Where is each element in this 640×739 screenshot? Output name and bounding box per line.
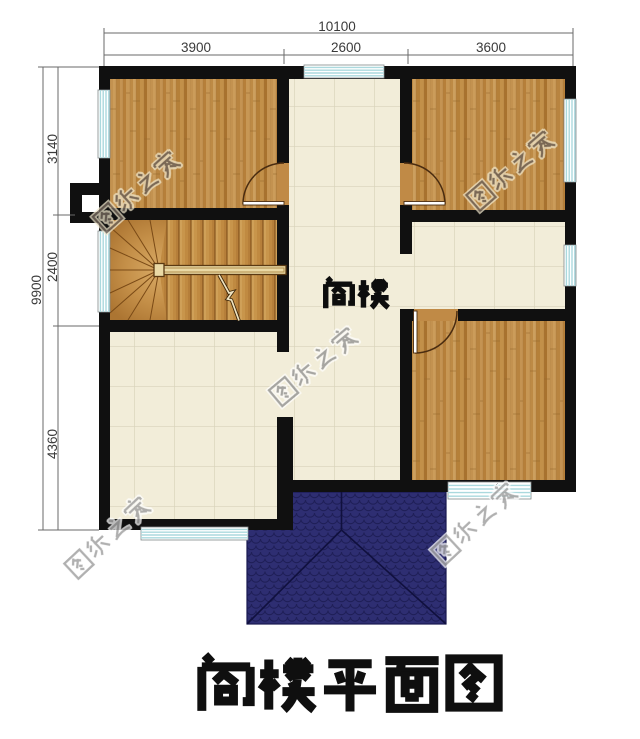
svg-text:2400: 2400 — [45, 252, 60, 282]
svg-text:3900: 3900 — [181, 40, 211, 55]
svg-text:2600: 2600 — [331, 40, 361, 55]
svg-text:3140: 3140 — [45, 134, 60, 164]
svg-text:9900: 9900 — [29, 275, 44, 305]
svg-text:4360: 4360 — [45, 429, 60, 459]
svg-text:10100: 10100 — [318, 19, 356, 34]
svg-text:3600: 3600 — [476, 40, 506, 55]
